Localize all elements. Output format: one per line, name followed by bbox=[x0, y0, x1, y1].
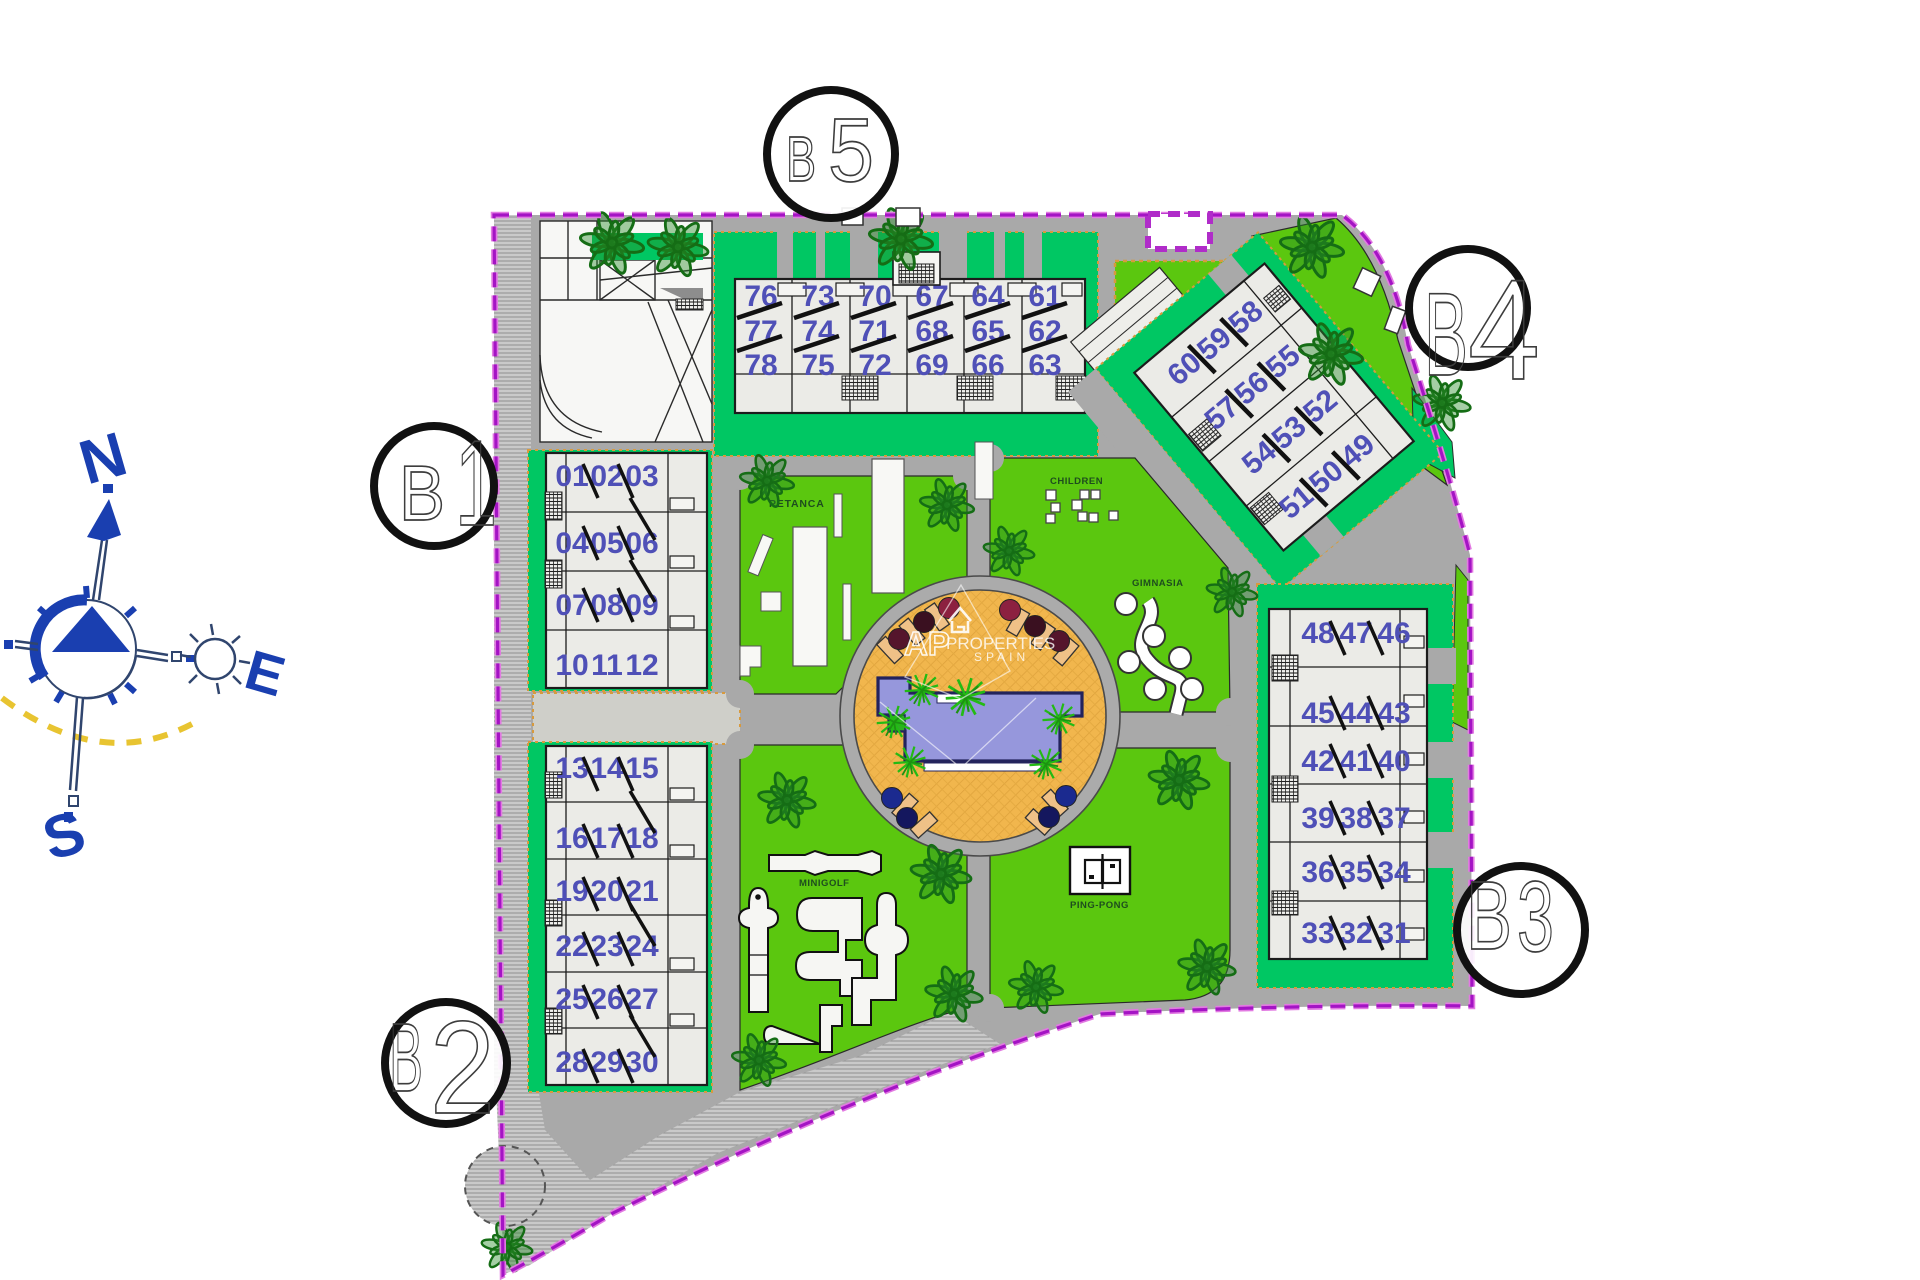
svg-text:66: 66 bbox=[971, 349, 1004, 382]
svg-text:75: 75 bbox=[801, 349, 834, 382]
svg-text:39: 39 bbox=[1301, 802, 1334, 835]
svg-text:SPAIN: SPAIN bbox=[974, 650, 1029, 664]
svg-text:45: 45 bbox=[1301, 697, 1334, 730]
svg-text:5: 5 bbox=[828, 101, 874, 201]
svg-text:MINIGOLF: MINIGOLF bbox=[799, 878, 849, 889]
svg-text:42: 42 bbox=[1301, 745, 1334, 778]
svg-text:12: 12 bbox=[625, 649, 658, 682]
svg-text:15: 15 bbox=[625, 752, 658, 785]
svg-text:78: 78 bbox=[744, 349, 777, 382]
svg-text:11: 11 bbox=[591, 649, 623, 682]
svg-text:63: 63 bbox=[1028, 349, 1061, 382]
svg-text:2: 2 bbox=[430, 994, 495, 1141]
svg-text:33: 33 bbox=[1301, 917, 1334, 950]
svg-text:3: 3 bbox=[1517, 861, 1554, 973]
svg-text:1: 1 bbox=[455, 415, 497, 551]
svg-text:B: B bbox=[1424, 269, 1468, 401]
svg-text:B: B bbox=[786, 123, 816, 195]
svg-text:N: N bbox=[72, 420, 134, 499]
svg-text:46: 46 bbox=[1377, 617, 1410, 650]
svg-text:72: 72 bbox=[858, 349, 891, 382]
svg-text:07: 07 bbox=[555, 589, 588, 622]
svg-text:B: B bbox=[1466, 861, 1512, 970]
svg-text:B: B bbox=[389, 1003, 423, 1112]
svg-text:PING-PONG: PING-PONG bbox=[1070, 900, 1129, 911]
svg-text:10: 10 bbox=[555, 649, 588, 682]
svg-text:GIMNASIA: GIMNASIA bbox=[1132, 578, 1184, 589]
svg-text:S: S bbox=[36, 798, 93, 873]
svg-text:E: E bbox=[239, 637, 292, 708]
svg-text:B: B bbox=[399, 449, 445, 537]
svg-text:AP: AP bbox=[904, 625, 950, 662]
svg-text:69: 69 bbox=[915, 349, 948, 382]
svg-text:36: 36 bbox=[1301, 856, 1334, 889]
svg-text:CHILDREN: CHILDREN bbox=[1050, 476, 1103, 487]
svg-text:4: 4 bbox=[1468, 251, 1540, 410]
